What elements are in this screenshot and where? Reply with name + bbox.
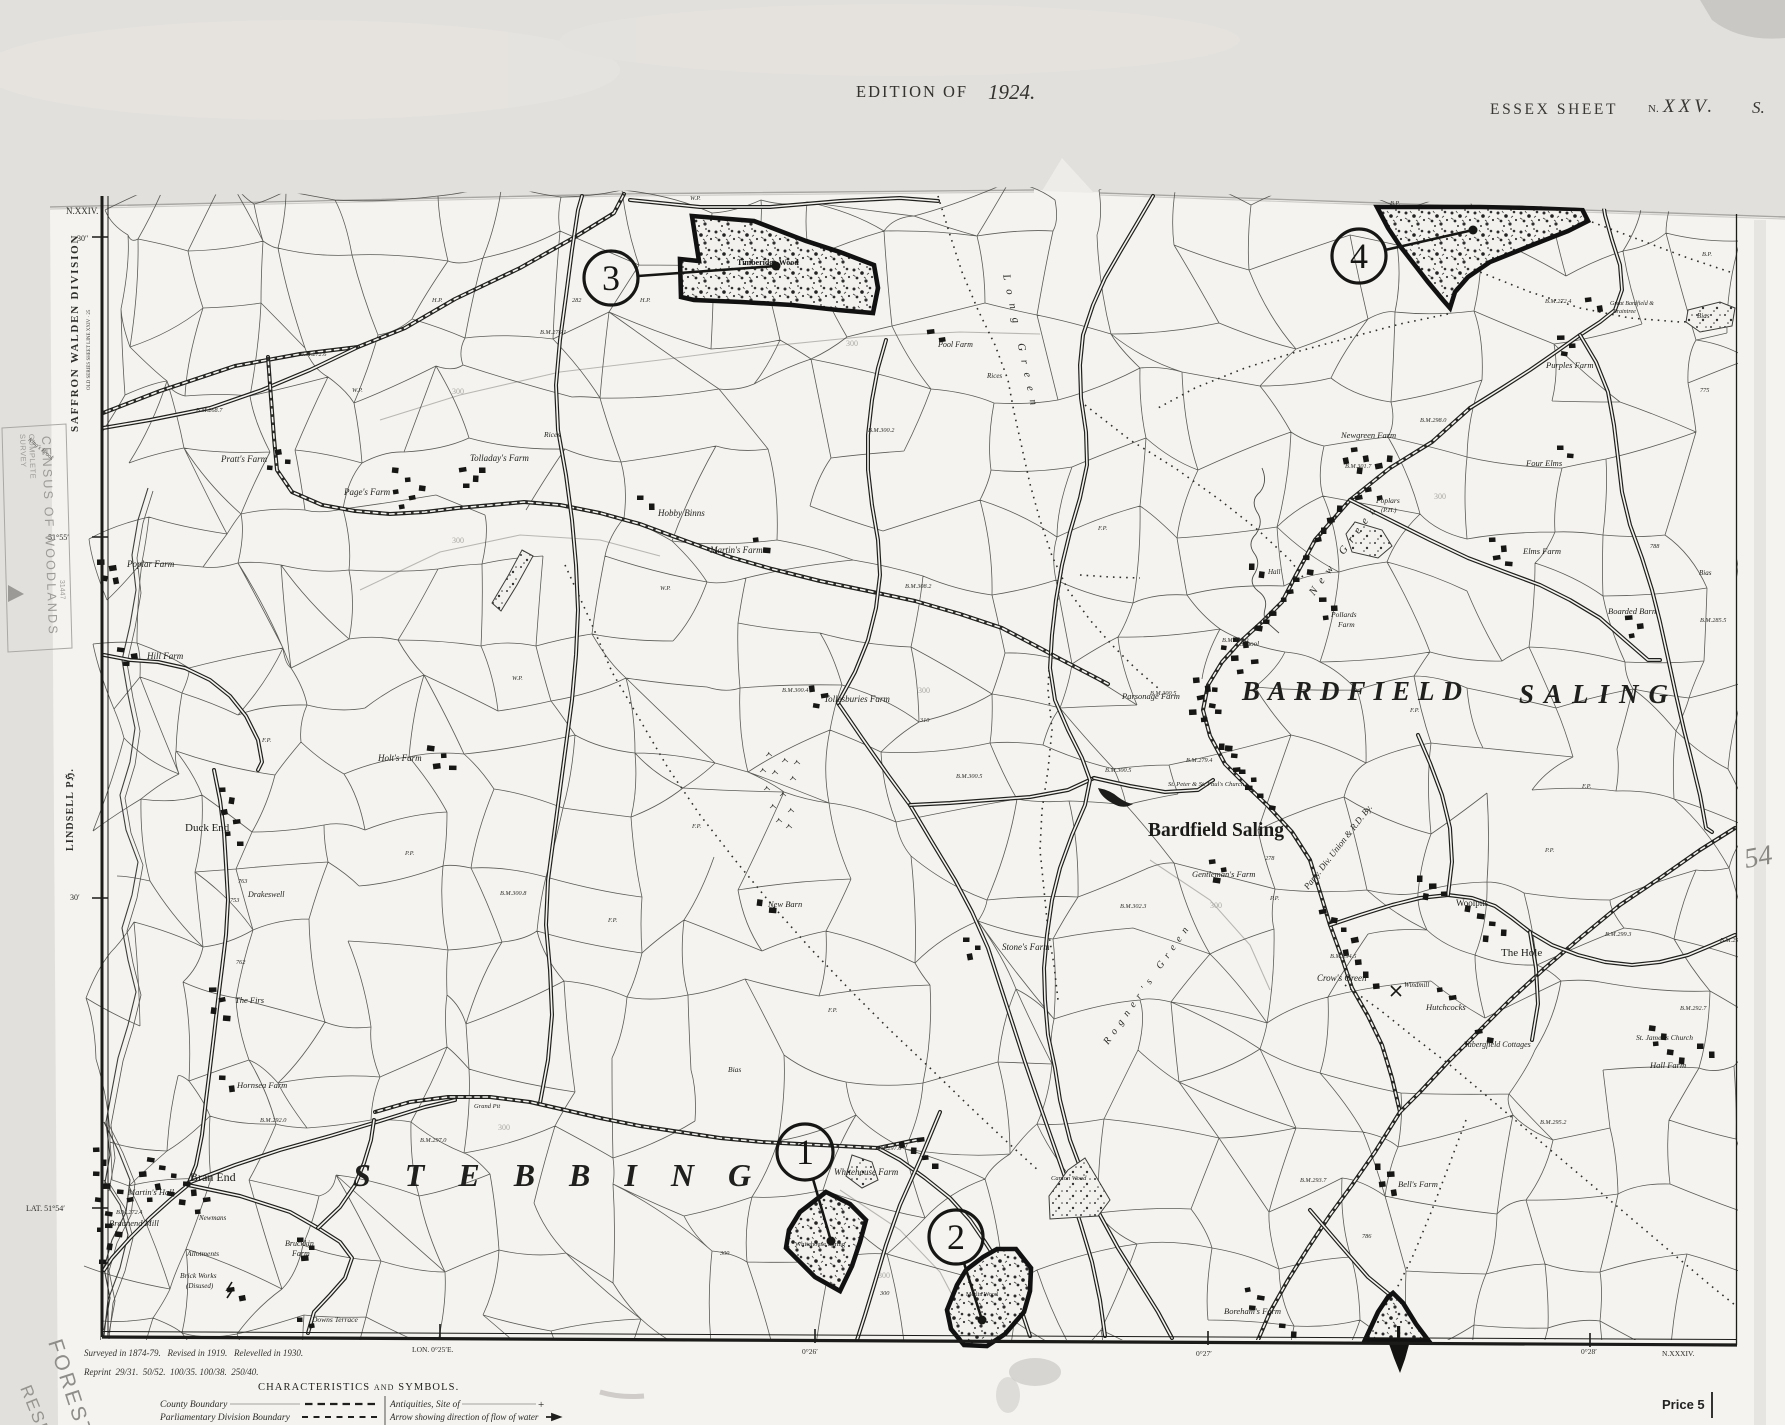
svg-text:Grand Pit: Grand Pit bbox=[474, 1103, 500, 1110]
svg-text:Parliamentary Division Boundar: Parliamentary Division Boundary bbox=[159, 1413, 291, 1423]
svg-text:Pool Farm: Pool Farm bbox=[937, 340, 973, 349]
svg-text:788: 788 bbox=[1650, 543, 1660, 550]
svg-text:B.M.298.0: B.M.298.0 bbox=[1420, 417, 1447, 424]
svg-text:Tollesburies Farm: Tollesburies Farm bbox=[824, 694, 890, 704]
svg-text:Page's Farm: Page's Farm bbox=[343, 487, 391, 497]
svg-text:1: 1 bbox=[796, 1132, 814, 1172]
svg-text:30′: 30′ bbox=[70, 893, 80, 902]
svg-text:Windmill: Windmill bbox=[1404, 981, 1429, 989]
svg-text:Newgreen Farm: Newgreen Farm bbox=[1340, 430, 1396, 440]
svg-text:B.M.272.4: B.M.272.4 bbox=[1545, 298, 1571, 305]
svg-text:B.M.272.4: B.M.272.4 bbox=[116, 1209, 142, 1216]
svg-text:300: 300 bbox=[498, 1123, 510, 1132]
svg-text:300: 300 bbox=[918, 686, 930, 695]
svg-text:Rices: Rices bbox=[986, 372, 1002, 380]
svg-text:Farm: Farm bbox=[1337, 620, 1355, 629]
svg-text:763: 763 bbox=[238, 878, 247, 885]
svg-text:St. James's Church: St. James's Church bbox=[1636, 1033, 1693, 1042]
svg-text:F.P.: F.P. bbox=[1409, 707, 1419, 714]
svg-text:F.P.: F.P. bbox=[691, 823, 701, 830]
svg-text:B.M.300.2: B.M.300.2 bbox=[868, 427, 895, 434]
svg-text:Hall Farm: Hall Farm bbox=[1649, 1060, 1686, 1070]
svg-text:Antiquities, Site of: Antiquities, Site of bbox=[389, 1399, 461, 1410]
svg-text:300: 300 bbox=[1210, 901, 1222, 910]
svg-text:B.M.297.6: B.M.297.6 bbox=[875, 1145, 902, 1152]
svg-text:Stone's Farm: Stone's Farm bbox=[1002, 942, 1050, 952]
svg-text:XXV.: XXV. bbox=[1662, 96, 1716, 117]
svg-text:W.P.: W.P. bbox=[352, 387, 363, 394]
svg-text:The Firs: The Firs bbox=[235, 995, 265, 1005]
svg-text:S.: S. bbox=[1752, 98, 1765, 117]
svg-text:P.P.: P.P. bbox=[1544, 847, 1554, 854]
svg-text:B.M.294.0: B.M.294.0 bbox=[1222, 637, 1249, 644]
svg-text:Rices: Rices bbox=[543, 430, 560, 439]
svg-text:Whitehouse Farm: Whitehouse Farm bbox=[834, 1167, 899, 1177]
svg-text:Merlin Wood: Merlin Wood bbox=[966, 1292, 998, 1298]
svg-text:300: 300 bbox=[452, 387, 464, 396]
svg-text:Duck End: Duck End bbox=[185, 822, 230, 834]
svg-text:(P.H.): (P.H.) bbox=[1381, 507, 1396, 514]
svg-text:F.P.: F.P. bbox=[1097, 525, 1107, 532]
svg-text:B.M.302.3: B.M.302.3 bbox=[1120, 903, 1146, 910]
svg-text:Boarded Barn: Boarded Barn bbox=[1608, 606, 1656, 616]
svg-text:B.M.272.6: B.M.272.6 bbox=[300, 351, 327, 358]
svg-text:County Boundary: County Boundary bbox=[160, 1400, 228, 1410]
svg-text:B.M.276.1: B.M.276.1 bbox=[540, 329, 566, 336]
svg-text:SAFFRON WALDEN DIVISION: SAFFRON WALDEN DIVISION bbox=[69, 234, 81, 432]
svg-text:Hall: Hall bbox=[1267, 568, 1281, 576]
svg-text:Elms Farm: Elms Farm bbox=[1522, 546, 1561, 556]
svg-text:SURVEY: SURVEY bbox=[18, 434, 28, 468]
svg-text:Great Bardfield &: Great Bardfield & bbox=[1610, 300, 1654, 307]
svg-text:N.XXIV.: N.XXIV. bbox=[66, 206, 98, 216]
svg-text:N.: N. bbox=[1648, 103, 1659, 115]
svg-text:Boreham's Farm: Boreham's Farm bbox=[1224, 1306, 1281, 1316]
svg-text:Tolladay's Farm: Tolladay's Farm bbox=[470, 453, 529, 463]
svg-text:Braunend Mill: Braunend Mill bbox=[109, 1218, 159, 1228]
svg-text:W.P.: W.P. bbox=[690, 195, 701, 202]
svg-text:786: 786 bbox=[1362, 1233, 1372, 1240]
svg-text:Braintree: Braintree bbox=[1613, 309, 1636, 315]
svg-text:STEBBING: STEBBING bbox=[353, 1157, 785, 1193]
svg-text:Bias: Bias bbox=[1699, 569, 1712, 577]
svg-text:Arrow showing direction of flo: Arrow showing direction of flow of water bbox=[389, 1412, 539, 1422]
svg-text:F.P.: F.P. bbox=[1581, 783, 1591, 790]
svg-text:LINDSELL Pℌ.: LINDSELL Pℌ. bbox=[65, 768, 76, 851]
svg-text:Bias: Bias bbox=[1697, 312, 1710, 320]
svg-text:Bell's Farm: Bell's Farm bbox=[1398, 1179, 1438, 1189]
svg-text:H.P.: H.P. bbox=[639, 297, 651, 304]
svg-text:LON. 0°25′E.: LON. 0°25′E. bbox=[412, 1345, 454, 1354]
svg-text:Crow's Green: Crow's Green bbox=[1317, 973, 1367, 983]
svg-text:Surveyed in 1874-79. Revised: Surveyed in 1874-79. Revised in 1919. Re… bbox=[84, 1348, 303, 1358]
svg-text:B.M.292.7: B.M.292.7 bbox=[1680, 1005, 1707, 1012]
svg-text:OLD SERIES SHEET LINE XXIV · 2: OLD SERIES SHEET LINE XXIV · 25 bbox=[87, 309, 92, 390]
svg-text:B.M.279.4: B.M.279.4 bbox=[1186, 757, 1212, 764]
svg-text:F.P.: F.P. bbox=[827, 1007, 837, 1014]
svg-text:Allotments: Allotments bbox=[186, 1249, 219, 1258]
svg-text:300: 300 bbox=[452, 536, 464, 545]
svg-text:B.M.300.8: B.M.300.8 bbox=[500, 890, 527, 897]
svg-text:300: 300 bbox=[1434, 492, 1446, 501]
svg-text:B.M.295.2: B.M.295.2 bbox=[1540, 1119, 1567, 1126]
svg-text:B.M.285.5: B.M.285.5 bbox=[1700, 617, 1726, 624]
svg-text:B.M.300.4: B.M.300.4 bbox=[782, 687, 808, 694]
svg-text:Downs Terrace: Downs Terrace bbox=[311, 1315, 358, 1324]
svg-text:B.M.297.0: B.M.297.0 bbox=[420, 1137, 447, 1144]
svg-text:Reprint 29/31. 50/52. 100/3: Reprint 29/31. 50/52. 100/35. 100/38. 25… bbox=[83, 1367, 259, 1377]
svg-text:Hutchcocks: Hutchcocks bbox=[1425, 1002, 1466, 1012]
svg-text:54: 54 bbox=[1742, 840, 1775, 875]
svg-text:(Disused): (Disused) bbox=[186, 1282, 214, 1290]
svg-text:Brick Works: Brick Works bbox=[180, 1271, 217, 1280]
svg-text:Four Elms: Four Elms bbox=[1525, 458, 1563, 468]
svg-text:Poplars: Poplars bbox=[1375, 496, 1400, 505]
svg-text:B.M.292.0: B.M.292.0 bbox=[260, 1117, 287, 1124]
svg-text:278: 278 bbox=[1265, 855, 1275, 862]
svg-text:Hornsea Farm: Hornsea Farm bbox=[236, 1080, 287, 1090]
svg-text:LAT. 51°54′: LAT. 51°54′ bbox=[26, 1204, 65, 1213]
svg-text:Bardfield Saling: Bardfield Saling bbox=[1148, 820, 1284, 841]
svg-text:753: 753 bbox=[230, 897, 239, 904]
svg-text:300: 300 bbox=[719, 1250, 730, 1257]
svg-text:EDITION OF: EDITION OF bbox=[856, 82, 968, 101]
svg-text:1924.: 1924. bbox=[988, 80, 1035, 104]
svg-text:Tabergfield Cottages: Tabergfield Cottages bbox=[1464, 1040, 1531, 1049]
svg-text:775: 775 bbox=[1700, 387, 1709, 394]
svg-text:Bias: Bias bbox=[728, 1065, 741, 1074]
svg-text:N.XXXIV.: N.XXXIV. bbox=[1662, 1349, 1694, 1358]
svg-text:SALING: SALING bbox=[1519, 679, 1678, 709]
svg-text:310: 310 bbox=[919, 717, 930, 724]
svg-text:B.M.268.7: B.M.268.7 bbox=[196, 407, 223, 414]
svg-text:Newmans: Newmans bbox=[198, 1214, 227, 1222]
svg-text:P.P.: P.P. bbox=[404, 850, 414, 857]
svg-text:B.M.293.7: B.M.293.7 bbox=[1300, 1177, 1327, 1184]
svg-text:B.M.300.5: B.M.300.5 bbox=[956, 773, 982, 780]
svg-text:300: 300 bbox=[879, 1290, 890, 1297]
svg-text:B.M.294.5: B.M.294.5 bbox=[1330, 953, 1356, 960]
svg-text:Canton Wood: Canton Wood bbox=[1051, 1175, 1087, 1182]
svg-text:282: 282 bbox=[572, 297, 582, 304]
svg-text:W.P.: W.P. bbox=[660, 585, 671, 592]
svg-text:0°26′: 0°26′ bbox=[802, 1347, 818, 1356]
svg-text:B.M.308.2: B.M.308.2 bbox=[905, 583, 932, 590]
svg-text:4: 4 bbox=[1350, 236, 1368, 276]
svg-text:B.P.: B.P. bbox=[1390, 200, 1400, 207]
svg-text:St. Peter & St. Paul's Church: St. Peter & St. Paul's Church bbox=[1168, 781, 1244, 788]
svg-text:0°28′: 0°28′ bbox=[1581, 1347, 1597, 1356]
svg-text:F.P.: F.P. bbox=[607, 917, 617, 924]
svg-text:ESSEX SHEET: ESSEX SHEET bbox=[1490, 101, 1618, 118]
svg-text:+: + bbox=[538, 1399, 544, 1411]
svg-text:F.P.: F.P. bbox=[261, 737, 271, 744]
svg-text:B.M.300.5: B.M.300.5 bbox=[1150, 690, 1176, 697]
svg-text:300: 300 bbox=[846, 339, 858, 348]
svg-text:Drakeswell: Drakeswell bbox=[247, 890, 285, 899]
svg-text:B.P.: B.P. bbox=[1702, 251, 1712, 258]
svg-text:Woolpits: Woolpits bbox=[1456, 898, 1489, 908]
svg-text:B.M.299.3: B.M.299.3 bbox=[1605, 931, 1631, 938]
svg-text:BARDFIELD: BARDFIELD bbox=[1241, 676, 1470, 706]
svg-text:Bruckkin: Bruckkin bbox=[285, 1239, 314, 1248]
svg-text:0°27′: 0°27′ bbox=[1196, 1349, 1212, 1358]
svg-text:2: 2 bbox=[947, 1217, 965, 1257]
svg-text:Pratt's Farm: Pratt's Farm bbox=[220, 454, 268, 464]
svg-text:Pollards: Pollards bbox=[1330, 610, 1357, 619]
svg-text:H.P.: H.P. bbox=[431, 297, 443, 304]
svg-text:Price 5: Price 5 bbox=[1662, 1397, 1705, 1412]
svg-text:B.M.301.7: B.M.301.7 bbox=[1345, 463, 1372, 470]
svg-text:Martin's Farm: Martin's Farm bbox=[709, 545, 763, 555]
svg-text:The Hole: The Hole bbox=[1501, 947, 1542, 959]
svg-text:W.P.: W.P. bbox=[512, 675, 523, 682]
svg-text:Hill Farm: Hill Farm bbox=[146, 651, 184, 661]
svg-text:Bran End: Bran End bbox=[190, 1170, 236, 1184]
svg-text:Whitehouse Spring: Whitehouse Spring bbox=[795, 1241, 846, 1248]
svg-text:Hobby Binns: Hobby Binns bbox=[657, 508, 705, 518]
svg-text:New Barn: New Barn bbox=[767, 899, 802, 909]
svg-text:3: 3 bbox=[602, 258, 620, 298]
svg-text:Gentleman's Farm: Gentleman's Farm bbox=[1192, 869, 1255, 879]
svg-text:Poplar Farm: Poplar Farm bbox=[126, 559, 175, 569]
svg-text:P.P.: P.P. bbox=[1269, 895, 1279, 902]
svg-text:762: 762 bbox=[236, 959, 246, 966]
svg-text:Martin's Hall: Martin's Hall bbox=[127, 1187, 175, 1197]
svg-text:Farm: Farm bbox=[291, 1249, 310, 1258]
svg-text:31447: 31447 bbox=[58, 580, 66, 600]
svg-text:B.M.300.5: B.M.300.5 bbox=[1105, 767, 1131, 774]
svg-text:Purples Farm: Purples Farm bbox=[1545, 360, 1593, 370]
svg-text:Holt's Farm: Holt's Farm bbox=[377, 753, 422, 763]
svg-text:CHARACTERISTICS AND SYMBOLS.: CHARACTERISTICS AND SYMBOLS. bbox=[258, 1382, 459, 1393]
